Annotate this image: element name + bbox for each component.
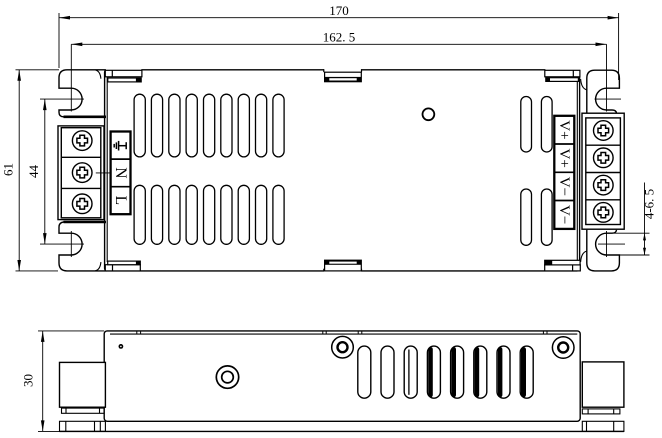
svg-text:162. 5: 162. 5 (323, 30, 356, 45)
svg-text:V+: V+ (556, 120, 572, 139)
svg-text:44: 44 (26, 165, 41, 179)
svg-text:V−: V− (556, 177, 572, 196)
svg-text:30: 30 (21, 374, 36, 387)
svg-text:170: 170 (329, 3, 349, 18)
svg-text:4-6. 5: 4-6. 5 (642, 189, 657, 219)
svg-text:L: L (112, 196, 129, 205)
svg-text:N: N (112, 167, 129, 178)
svg-text:61: 61 (1, 163, 16, 176)
svg-text:V+: V+ (556, 149, 572, 168)
svg-text:V−: V− (556, 205, 572, 224)
